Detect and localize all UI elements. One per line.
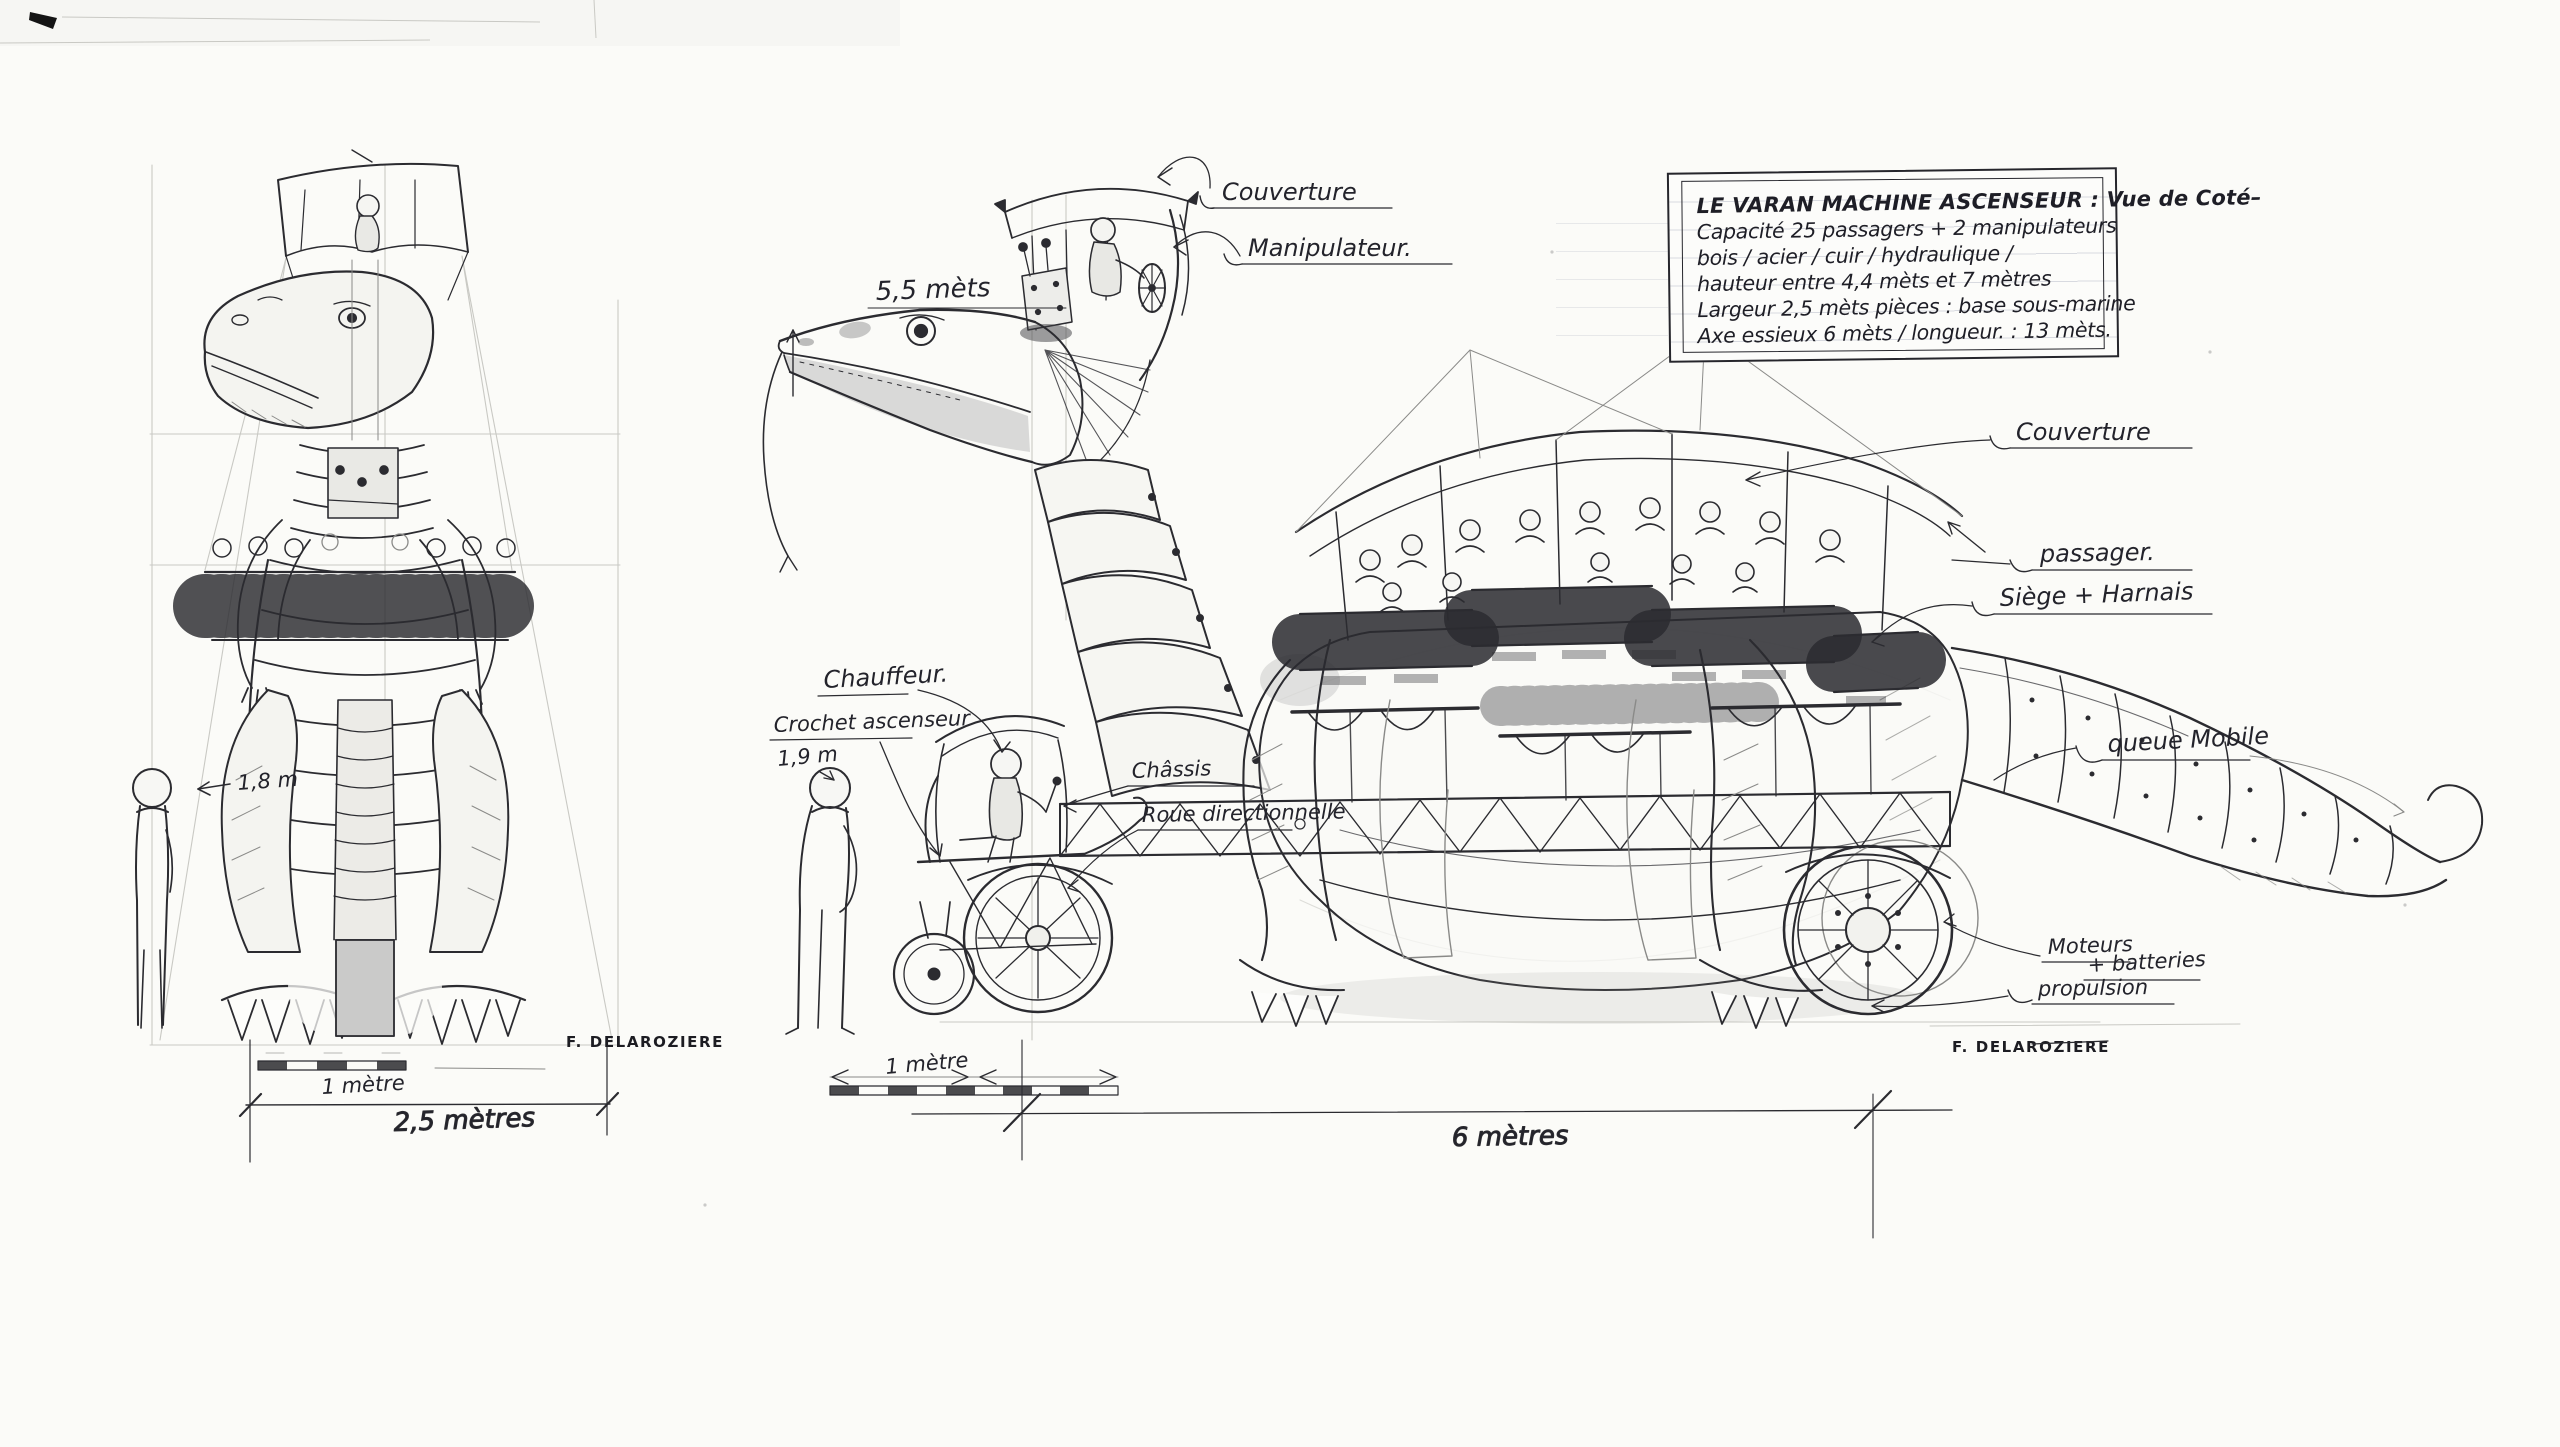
side-signature-group: F. DELAROZIERE — [1930, 1024, 2240, 1056]
front-person-height-text: 1,8 m — [237, 767, 299, 795]
side-scale-person — [786, 768, 856, 1034]
front-width-dimension: 2,5 mètres — [240, 1040, 618, 1162]
svg-text:Siège + Harnais: Siège + Harnais — [1999, 577, 2194, 612]
svg-text:Crochet ascenseur: Crochet ascenseur — [773, 706, 971, 737]
tail-tip-curl — [2428, 785, 2482, 862]
axle-dimension: 6 mètres — [912, 1040, 1952, 1238]
front-scale-bar: 1 mètre — [258, 1053, 545, 1099]
elevator-hook — [1084, 798, 1147, 854]
svg-text:1,9 m: 1,9 m — [776, 742, 838, 771]
label-front-person-height: 1,8 m — [198, 767, 299, 795]
svg-text:Roue directionnelle: Roue directionnelle — [1142, 799, 1346, 827]
svg-text:Couverture: Couverture — [1222, 178, 1357, 206]
label-manipulateur: Manipulateur. — [1174, 232, 1452, 265]
front-view: 1,8 m 1 mètre 2,5 mètres F. DELAROZIERE — [133, 150, 724, 1162]
front-signature: F. DELAROZIERE — [566, 1033, 724, 1051]
title-block: LE VARAN MACHINE ASCENSEUR : Vue de Coté… — [1667, 167, 2119, 362]
driver-figure — [991, 749, 1021, 779]
svg-text:5,5 mèts: 5,5 mèts — [875, 273, 991, 307]
svg-text:Chauffeur.: Chauffeur. — [823, 660, 949, 694]
manipulator-platform — [995, 189, 1198, 380]
front-scale-bar-text: 1 mètre — [321, 1071, 405, 1099]
manipulator-figure — [1091, 218, 1115, 242]
title-block-inner-frame: LE VARAN MACHINE ASCENSEUR : Vue de Coté… — [1681, 177, 2104, 353]
svg-text:passager.: passager. — [2039, 538, 2155, 568]
svg-text:Manipulateur.: Manipulateur. — [1248, 234, 1412, 262]
front-wheel — [894, 864, 1112, 1014]
front-lizard-head — [204, 272, 433, 429]
axle-span-text: 6 mètres — [1452, 1121, 1569, 1153]
tail — [1952, 648, 2482, 896]
title-block-rule-lines — [1556, 196, 1668, 336]
svg-text:+ batteries: + batteries — [2087, 947, 2206, 977]
front-manipulator-figure — [357, 195, 379, 217]
side-scale-bar: 1 mètre — [830, 1048, 1118, 1095]
label-chauffeur: Chauffeur. — [818, 660, 1010, 752]
svg-text:Couverture: Couverture — [2016, 418, 2151, 446]
varan-machine-drawing: 1,8 m 1 mètre 2,5 mètres F. DELAROZIERE — [0, 0, 2560, 1447]
neck-bands — [1035, 460, 1270, 796]
front-central-column — [334, 700, 396, 1036]
label-crochet-ascenseur: Crochet ascenseur — [770, 706, 972, 856]
side-scale-bar-text: 1 mètre — [884, 1048, 969, 1079]
tongue — [763, 352, 788, 556]
svg-text:queue Mobile: queue Mobile — [2107, 722, 2270, 758]
label-moteurs-batteries: Moteurs + batteries — [1944, 914, 2206, 980]
label-passager: passager. — [1948, 522, 2192, 572]
title-block-length: Axe essieux 6 mèts / longueur. : 13 mèts… — [1697, 317, 2091, 349]
scanned-sketch-page: 1,8 m 1 mètre 2,5 mètres F. DELAROZIERE — [0, 0, 2560, 1447]
svg-text:propulsion: propulsion — [2037, 975, 2149, 1001]
svg-text:Châssis: Châssis — [1131, 756, 1211, 783]
front-width-text: 2,5 mètres — [393, 1103, 535, 1138]
front-scale-person — [133, 769, 172, 1028]
side-signature: F. DELAROZIERE — [1952, 1038, 2110, 1056]
